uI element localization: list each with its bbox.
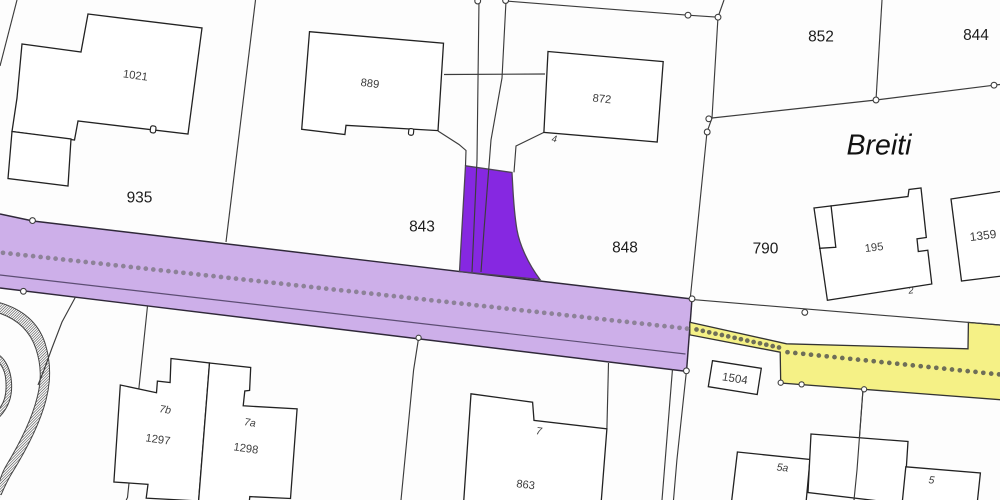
svg-text:848: 848	[612, 239, 638, 256]
svg-text:852: 852	[808, 28, 834, 45]
svg-text:844: 844	[963, 27, 989, 44]
svg-text:790: 790	[753, 241, 779, 258]
svg-text:863: 863	[516, 478, 536, 492]
svg-text:889: 889	[360, 77, 380, 91]
svg-text:5a: 5a	[776, 461, 789, 474]
svg-text:7b: 7b	[159, 403, 172, 417]
svg-text:195: 195	[864, 241, 884, 255]
svg-text:935: 935	[127, 190, 153, 207]
svg-text:843: 843	[409, 219, 435, 236]
svg-text:Breiti: Breiti	[847, 129, 913, 161]
svg-text:7a: 7a	[243, 416, 256, 430]
svg-text:872: 872	[592, 93, 612, 107]
